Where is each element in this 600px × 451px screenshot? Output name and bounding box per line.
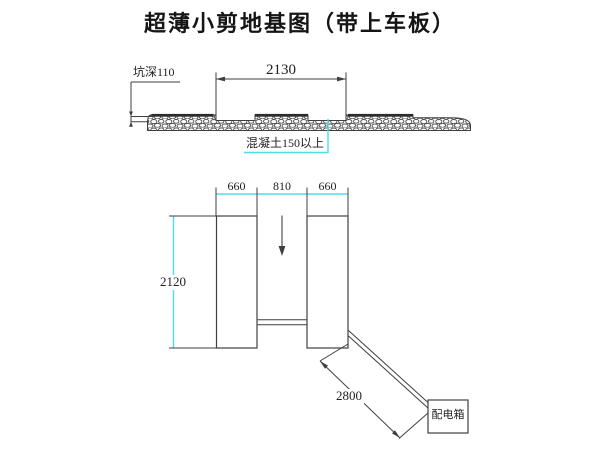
- plan-view: [169, 188, 468, 439]
- drive-direction-arrow: [279, 216, 286, 257]
- plan-dim-660-right-label: 660: [307, 180, 348, 194]
- power-box-label: 配电箱: [429, 409, 467, 422]
- platform-right-outline: [307, 216, 348, 348]
- foundation-drawing-canvas: 超薄小剪地基图（带上车板） 坑深110 2130 混凝土150以上 660 81…: [0, 0, 600, 451]
- cable-run-2800-label: 2800: [334, 389, 364, 404]
- pit-depth-label: 坑深110: [133, 66, 175, 80]
- concrete-slab: [148, 115, 471, 131]
- concrete-note-label: 混凝土150以上: [246, 137, 324, 151]
- plan-dim-2120-label: 2120: [158, 275, 188, 290]
- pit-width-label: 2130: [216, 62, 346, 79]
- pit-width-dimension: [216, 73, 346, 121]
- plan-dim-660-left-label: 660: [216, 180, 257, 194]
- platform-left-outline: [217, 216, 258, 348]
- plan-dim-810-label: 810: [257, 180, 307, 194]
- compacted-top-layer: [152, 114, 414, 117]
- cross-connector: [258, 320, 307, 325]
- drawing-title: 超薄小剪地基图（带上车板）: [0, 11, 600, 36]
